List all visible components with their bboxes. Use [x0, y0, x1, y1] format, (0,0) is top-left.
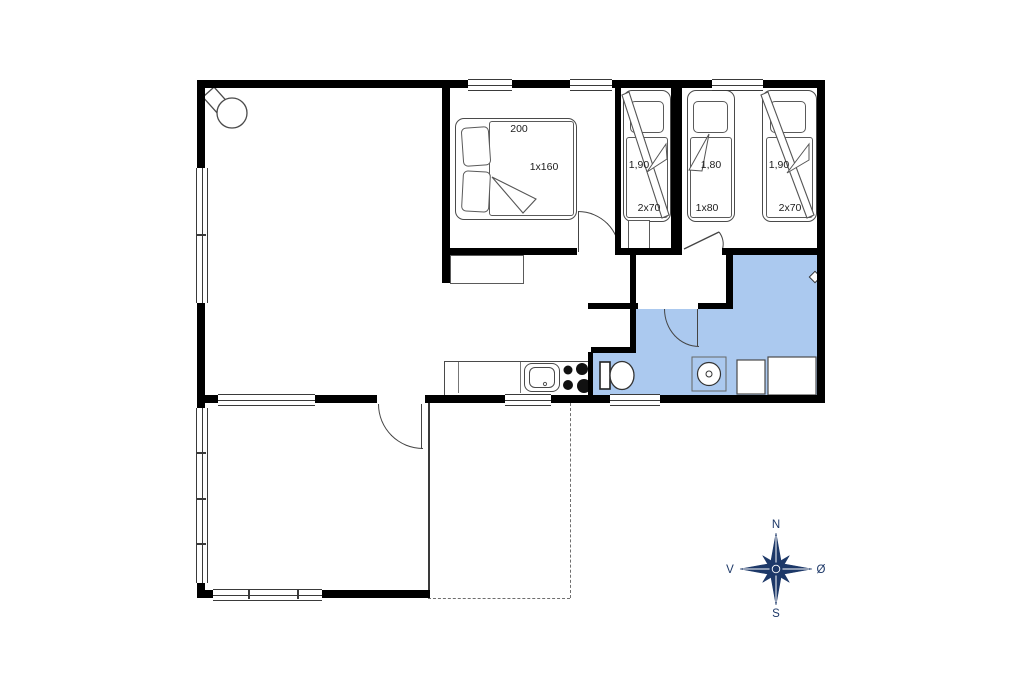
bed-label-bunk2-size: 2x70 [773, 203, 807, 214]
wall-closet-bottom [591, 347, 636, 353]
window-divider [196, 234, 206, 236]
toilet [600, 362, 634, 390]
wall-bedrooms-south [615, 248, 682, 255]
window [196, 168, 208, 303]
floor-drain [692, 357, 726, 391]
wall-bedrooms-south [722, 248, 817, 255]
window [218, 394, 315, 406]
window [570, 79, 612, 91]
window [213, 589, 322, 601]
compass-label-north: N [772, 519, 780, 531]
bed-label-master-length: 200 [504, 124, 534, 135]
window [468, 79, 512, 91]
bed-label-single-length: 1,80 [696, 160, 726, 171]
bed-label-bunk1-size: 2x70 [632, 203, 666, 214]
wall-right [817, 80, 825, 403]
wall-bedrooms-south [442, 248, 577, 255]
bed-label-master-size: 1x160 [524, 162, 564, 173]
compass-label-west: V [726, 564, 734, 576]
window-divider [196, 452, 206, 454]
annex-wall-right [428, 403, 430, 598]
window-divider [196, 543, 206, 545]
wall-kitchen-toilet [588, 352, 593, 395]
shower-cabinet [768, 357, 816, 395]
window-divider [248, 589, 250, 599]
stove [563, 363, 591, 393]
compass-label-east: Ø [817, 564, 826, 576]
wall-closet-right [630, 250, 636, 348]
fireplace [203, 87, 247, 128]
compass-label-south: S [772, 608, 780, 620]
bed-label-bunk2-length: 1,90 [764, 160, 794, 171]
washer [737, 360, 765, 394]
window [505, 394, 551, 406]
kids-room-door [684, 232, 723, 249]
wall-master-bunkroom [615, 88, 621, 252]
wall-hall-bathroom [726, 255, 733, 309]
window-divider [297, 589, 299, 599]
duvet-fold [492, 177, 536, 213]
wall-bathroom-north [588, 303, 638, 309]
wall-bunkroom-kidsroom [671, 88, 682, 255]
window [196, 408, 208, 583]
sink-drain [543, 382, 546, 385]
compass-rose: N S V Ø [726, 519, 825, 620]
window-divider [196, 498, 206, 500]
bed-label-bunk1-length: 1,90 [624, 160, 654, 171]
window [610, 394, 660, 406]
window [712, 79, 763, 91]
bed-label-single-size: 1x80 [690, 203, 724, 214]
floor-plan: N S V Ø 200 1x160 1,90 2x70 1,80 1x80 1,… [0, 0, 1024, 682]
detail-layer: N S V Ø [0, 0, 1024, 682]
wall-bathroom-north [698, 303, 726, 309]
